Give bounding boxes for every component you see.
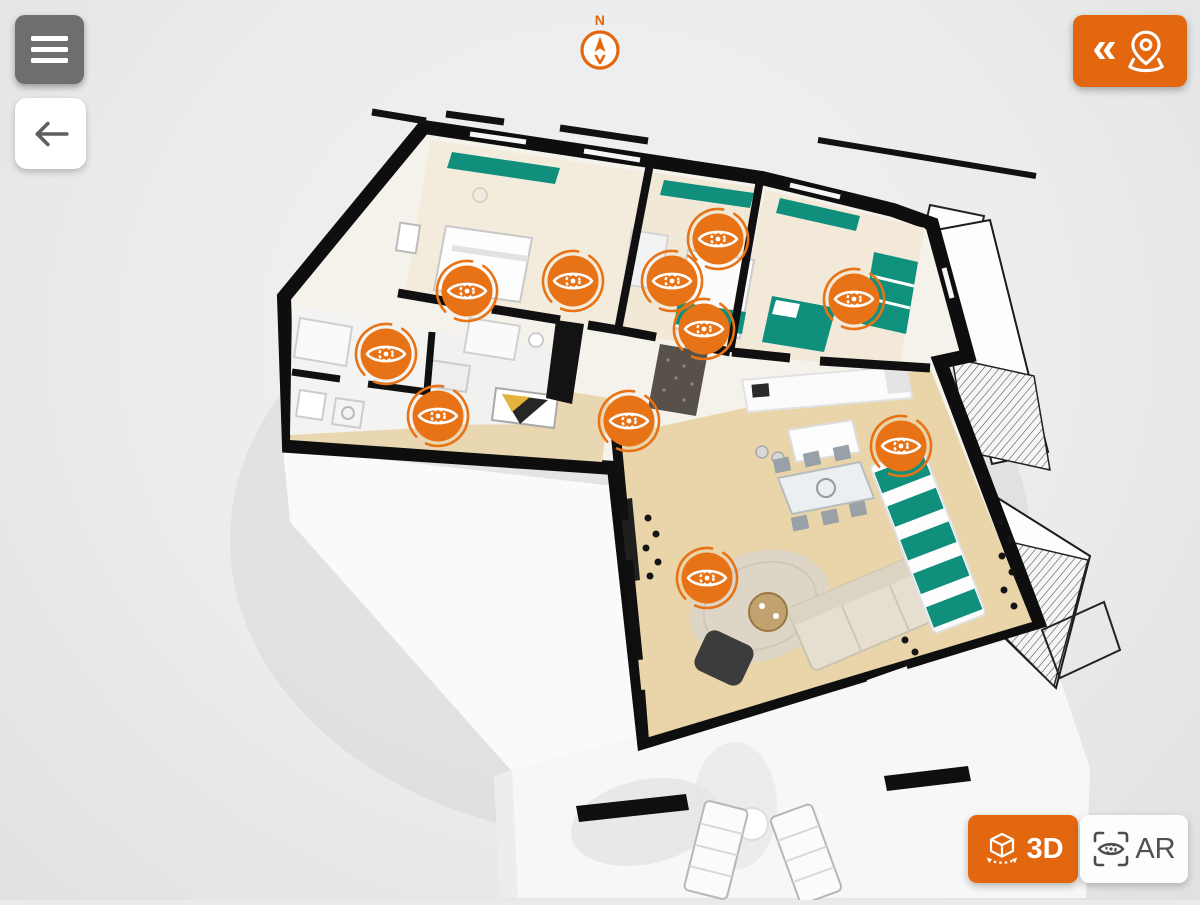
- viewpoint-marker[interactable]: [539, 247, 607, 315]
- hamburger-icon: [31, 36, 68, 41]
- viewpoint-marker[interactable]: [670, 295, 738, 363]
- hamburger-icon: [31, 47, 68, 52]
- viewpoint-marker[interactable]: [404, 382, 472, 450]
- viewpoint-marker[interactable]: [595, 387, 663, 455]
- compass-north-label: N: [595, 12, 606, 28]
- menu-button[interactable]: [15, 15, 84, 84]
- mode-ar-label: AR: [1135, 833, 1175, 866]
- map-pin-icon: [1124, 28, 1168, 74]
- mode-ar-button[interactable]: AR: [1080, 815, 1188, 883]
- arrow-left-icon: [31, 118, 71, 150]
- mode-3d-button[interactable]: 3D: [968, 815, 1078, 883]
- cube-3d-icon: [982, 830, 1022, 868]
- compass-needle-icon: [578, 28, 622, 72]
- viewpoint-marker[interactable]: [820, 265, 888, 333]
- ar-eye-icon: [1092, 830, 1130, 868]
- compass[interactable]: N: [577, 12, 623, 72]
- hamburger-icon: [31, 58, 68, 63]
- back-button[interactable]: [15, 98, 86, 169]
- viewpoint-marker[interactable]: [433, 257, 501, 325]
- viewpoint-marker[interactable]: [673, 544, 741, 612]
- viewer-canvas: N « 3D: [0, 0, 1200, 900]
- mode-3d-label: 3D: [1026, 833, 1063, 866]
- chevrons-left-icon: «: [1092, 28, 1116, 68]
- viewpoint-marker[interactable]: [867, 412, 935, 480]
- panorama-toggle-button[interactable]: «: [1073, 15, 1187, 87]
- viewpoint-marker[interactable]: [352, 320, 420, 388]
- viewpoint-marker[interactable]: [684, 205, 752, 273]
